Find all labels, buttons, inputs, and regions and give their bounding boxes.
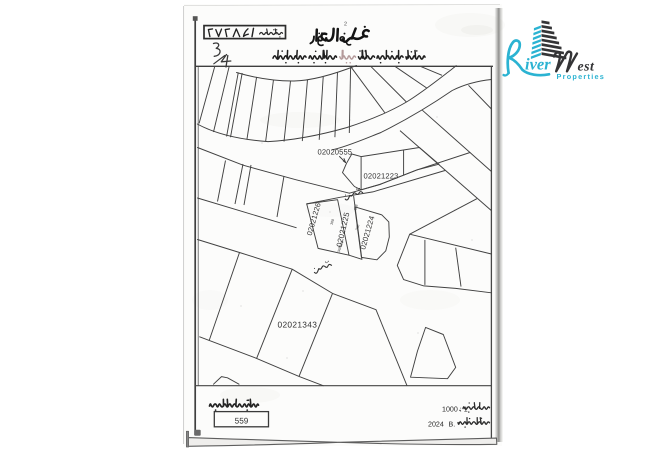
svg-text:Properties: Properties (557, 72, 606, 81)
svg-text:559: 559 (235, 416, 249, 425)
svg-text:B.: B. (449, 420, 456, 428)
svg-text:02020555: 02020555 (318, 147, 353, 156)
svg-text:02021223: 02021223 (364, 172, 399, 181)
svg-text:02021343: 02021343 (278, 319, 318, 329)
svg-text:iver: iver (525, 55, 551, 74)
svg-text:1000 : 1: 1000 : 1 (442, 405, 468, 413)
svg-text:2024: 2024 (428, 420, 444, 428)
svg-text:2: 2 (344, 22, 347, 28)
